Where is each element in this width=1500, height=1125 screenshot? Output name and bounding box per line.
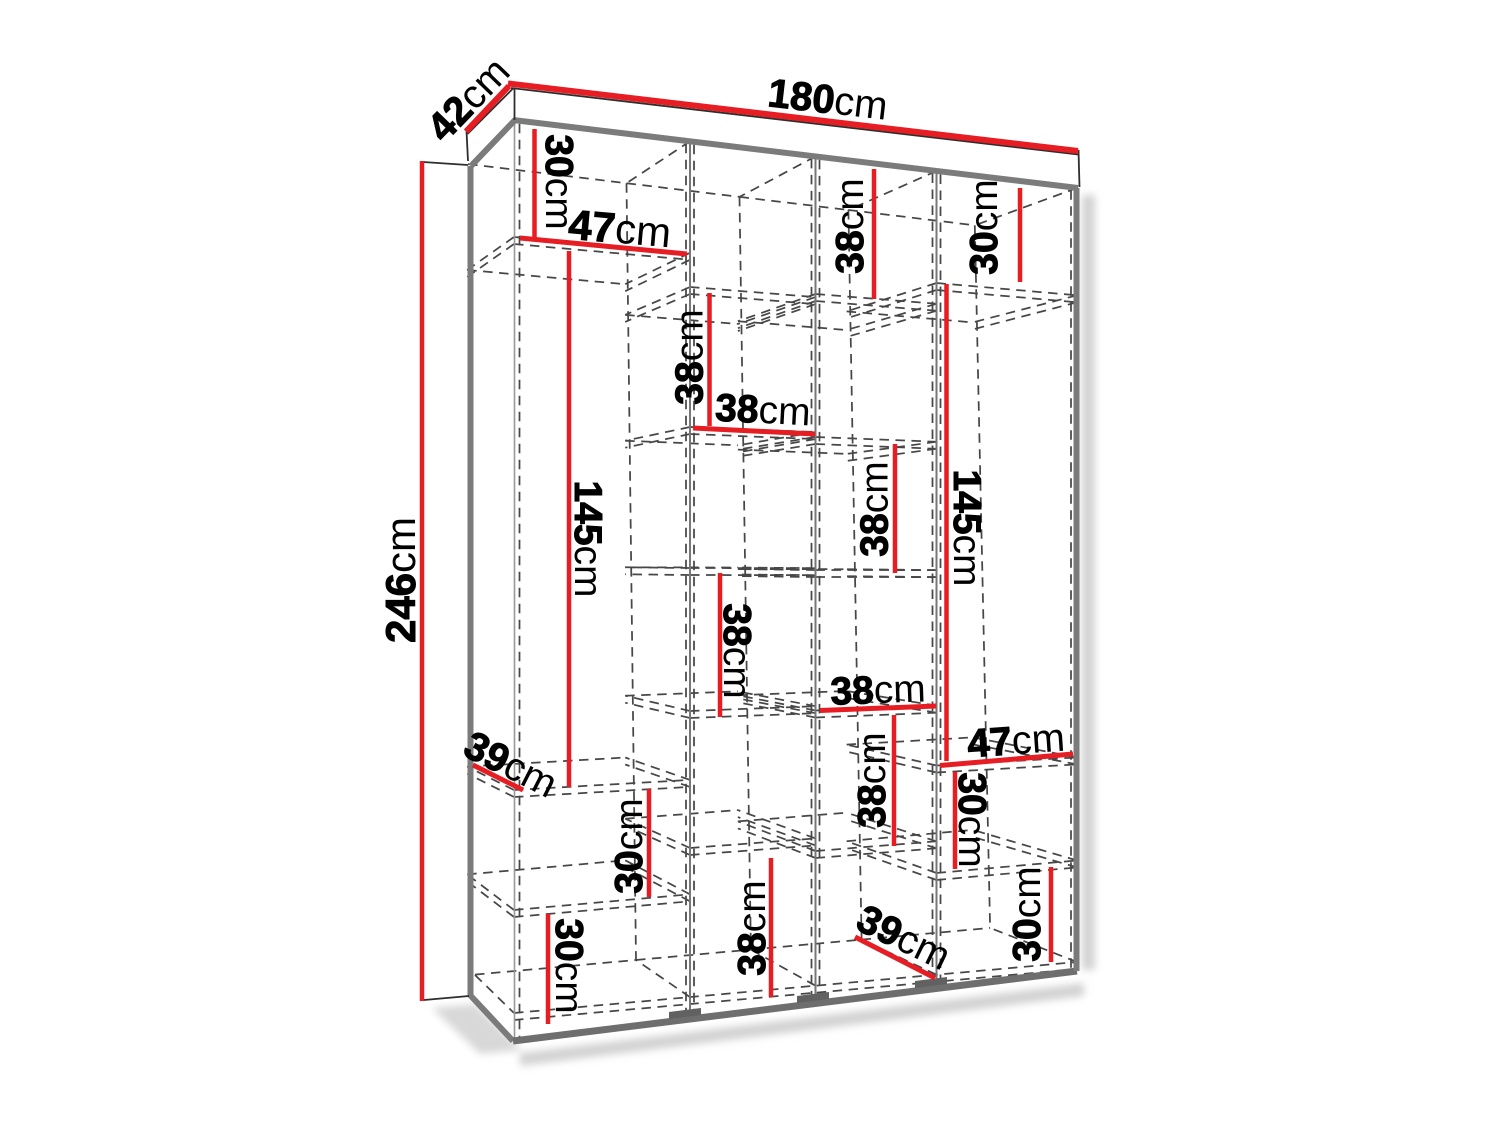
svg-text:38cm: 38cm — [714, 387, 812, 435]
svg-text:30cm: 30cm — [608, 798, 651, 893]
svg-text:30cm: 30cm — [963, 179, 1006, 274]
svg-text:30cm: 30cm — [547, 918, 590, 1013]
svg-text:30cm: 30cm — [1006, 866, 1049, 961]
svg-text:145cm: 145cm — [945, 469, 988, 586]
svg-text:47cm: 47cm — [966, 716, 1067, 767]
svg-text:38cm: 38cm — [830, 667, 927, 713]
svg-text:246cm: 246cm — [377, 517, 424, 643]
svg-text:47cm: 47cm — [567, 201, 673, 257]
svg-text:38cm: 38cm — [731, 880, 774, 975]
svg-text:38cm: 38cm — [851, 732, 894, 827]
svg-text:30cm: 30cm — [950, 772, 993, 867]
svg-text:38cm: 38cm — [829, 178, 872, 273]
svg-text:38cm: 38cm — [669, 309, 712, 404]
svg-text:145cm: 145cm — [566, 480, 609, 597]
svg-text:38cm: 38cm — [854, 461, 897, 556]
svg-text:38cm: 38cm — [715, 603, 758, 698]
